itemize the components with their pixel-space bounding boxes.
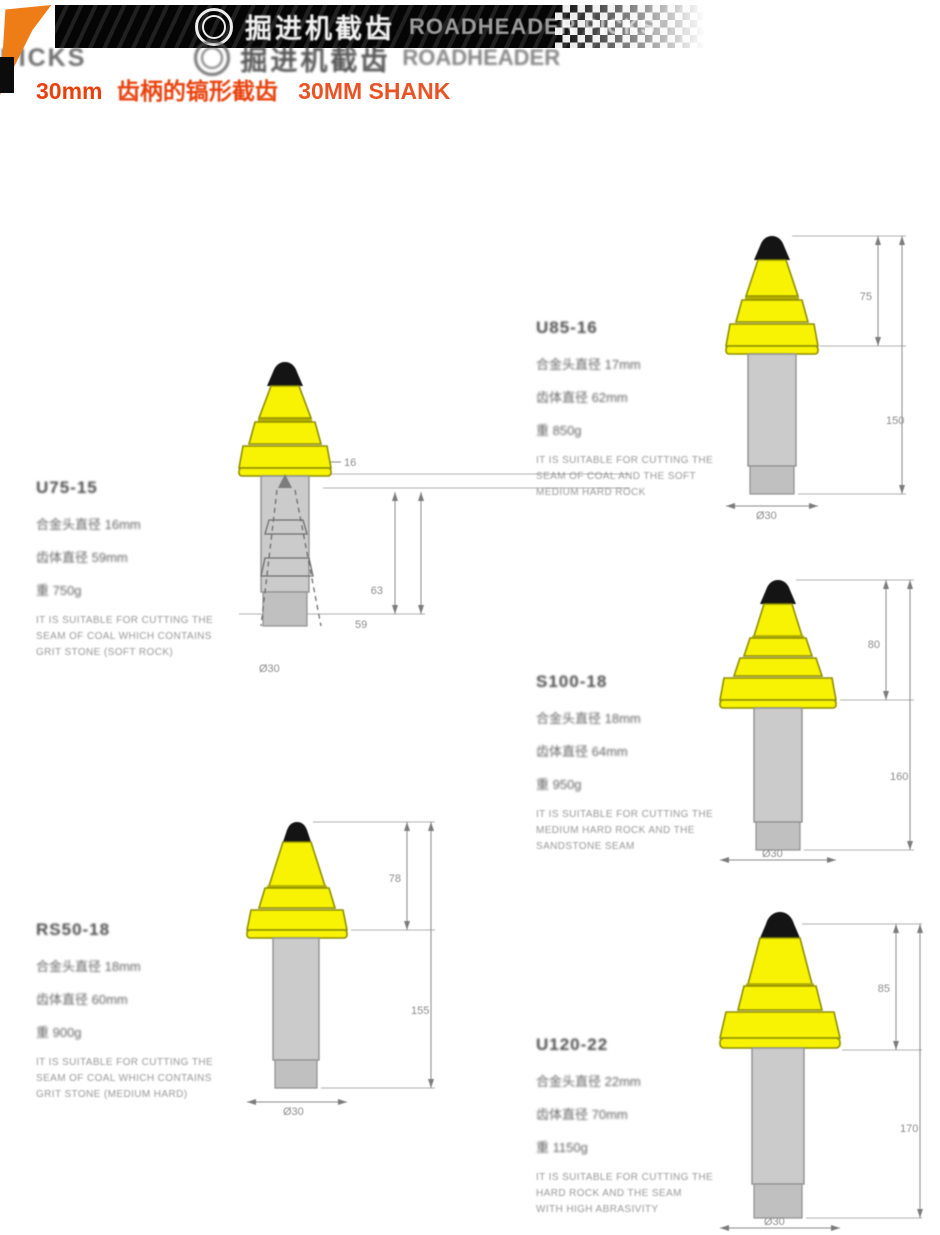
dim-label-total: 150 [886, 415, 904, 427]
subtitle-shank-size: 30mm [36, 78, 102, 104]
dim-label-shank: Ø30 [764, 1216, 785, 1228]
pick-drawing-2: 75 150 Ø30 [700, 222, 930, 522]
subtitle-en: 30MM SHANK [298, 78, 450, 104]
dim-label-shank: Ø30 [259, 663, 280, 675]
brand-logo-icon [195, 8, 233, 46]
pick-drawing-4: 78 155 Ø30 [225, 810, 460, 1115]
brand-title-en: ROADHEADER PICKS [409, 14, 656, 40]
page-subtitle: 30mm 齿柄的镐形截齿 30MM SHANK [36, 72, 450, 106]
left-edge-tab-decoration [0, 57, 14, 93]
dim-label-head: 75 [860, 291, 872, 303]
product-description: IT IS SUITABLE FOR CUTTING THE SEAM OF C… [36, 1055, 256, 1103]
product-description: IT IS SUITABLE FOR CUTTING THE SEAM OF C… [36, 613, 256, 661]
dim-label-height: 63 [371, 585, 383, 597]
dim-label-shank: Ø30 [762, 848, 783, 860]
spec-carbide-diameter: 合金头直径 18mm [36, 956, 256, 975]
dim-label-head: 85 [878, 983, 890, 995]
spec-body-diameter: 齿体直径 60mm [36, 989, 256, 1008]
dim-label-total: 160 [890, 771, 908, 783]
header-banner: 掘进机截齿 ROADHEADER PICKS [55, 5, 715, 48]
dim-label-gauge: 59 [355, 619, 367, 631]
product-block-1: U75-15 合金头直径 16mm 齿体直径 59mm 重 750g IT IS… [36, 478, 256, 661]
dim-label-total: 155 [411, 1005, 429, 1017]
dim-label-total: 170 [900, 1123, 918, 1135]
spec-weight: 重 750g [36, 580, 256, 599]
brand-title-cn: 掘进机截齿 [245, 7, 395, 46]
ghost-title-en: ROADHEADER [402, 45, 560, 71]
spec-carbide-diameter: 合金头直径 16mm [36, 514, 256, 533]
dim-label-shank: Ø30 [756, 510, 777, 522]
product-model: U75-15 [36, 478, 256, 498]
pick-drawing-5: 85 170 Ø30 [700, 898, 940, 1235]
dim-label-shank: Ø30 [283, 1106, 304, 1115]
dim-label-head: 80 [868, 639, 880, 651]
product-block-4: RS50-18 合金头直径 18mm 齿体直径 60mm 重 900g IT I… [36, 920, 256, 1103]
spec-body-diameter: 齿体直径 59mm [36, 547, 256, 566]
spec-weight: 重 900g [36, 1022, 256, 1041]
product-model: RS50-18 [36, 920, 256, 940]
pick-drawing-3: 80 160 Ø30 [700, 568, 935, 868]
dim-label-tip: 16 [344, 457, 356, 469]
dim-label-head: 78 [389, 873, 401, 885]
subtitle-cn: 齿柄的镐形截齿 [117, 78, 278, 104]
